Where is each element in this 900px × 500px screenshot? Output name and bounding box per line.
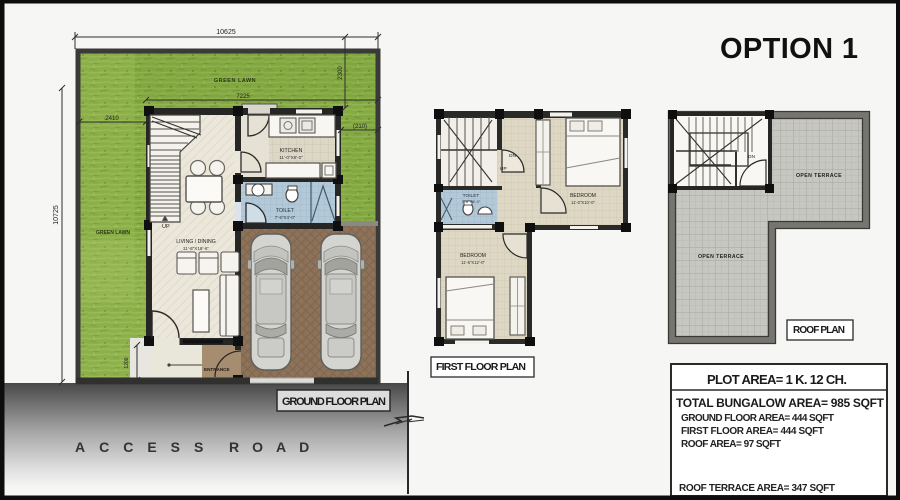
svg-text:BEDROOM: BEDROOM	[460, 253, 486, 259]
svg-text:TOILET: TOILET	[276, 208, 295, 214]
svg-text:7'-6"X4'-0": 7'-6"X4'-0"	[462, 199, 481, 204]
svg-text:OPTION 1: OPTION 1	[720, 33, 858, 65]
svg-text:DN: DN	[748, 154, 755, 160]
svg-text:ROOF TERRACE AREA= 347 SQFT: ROOF TERRACE AREA= 347 SQFT	[679, 483, 835, 494]
svg-text:ROOF PLAN: ROOF PLAN	[793, 325, 845, 336]
svg-text:GROUND FLOOR AREA= 444 SQFT: GROUND FLOOR AREA= 444 SQFT	[681, 413, 834, 424]
svg-text:2300: 2300	[338, 66, 344, 80]
svg-text:LIVING / DINING: LIVING / DINING	[176, 239, 216, 245]
svg-text:UP: UP	[500, 166, 507, 172]
svg-text:PLOT AREA= 1 K. 12 CH.: PLOT AREA= 1 K. 12 CH.	[707, 372, 847, 387]
svg-text:ACCESS: ACCESS	[75, 439, 217, 455]
svg-text:7225: 7225	[236, 94, 250, 100]
svg-text:UP: UP	[162, 224, 170, 230]
svg-text:11'-0"X10'-0": 11'-0"X10'-0"	[571, 200, 595, 205]
svg-text:1200: 1200	[124, 357, 130, 368]
svg-text:TOTAL BUNGALOW AREA= 985 SQFT: TOTAL BUNGALOW AREA= 985 SQFT	[676, 396, 885, 410]
svg-text:11'-6"X12'-0": 11'-6"X12'-0"	[461, 260, 485, 265]
svg-text:KITCHEN: KITCHEN	[280, 148, 303, 154]
svg-text:10725: 10725	[53, 205, 60, 225]
svg-text:FIRST FLOOR AREA= 444 SQFT: FIRST FLOOR AREA= 444 SQFT	[681, 426, 824, 437]
svg-text:7'-6"X4'-0": 7'-6"X4'-0"	[275, 215, 296, 220]
svg-text:DN: DN	[509, 153, 516, 159]
svg-text:OPEN TERRACE: OPEN TERRACE	[698, 254, 744, 260]
svg-text:FIRST FLOOR PLAN: FIRST FLOOR PLAN	[436, 361, 526, 373]
svg-text:ROAD: ROAD	[229, 439, 322, 455]
svg-text:GREEN LAWN: GREEN LAWN	[214, 78, 256, 84]
svg-text:2410: 2410	[105, 116, 119, 122]
svg-text:BEDROOM: BEDROOM	[570, 193, 596, 199]
svg-text:GROUND FLOOR PLAN: GROUND FLOOR PLAN	[282, 396, 386, 408]
svg-text:(210): (210)	[353, 124, 367, 130]
svg-text:10625: 10625	[216, 29, 236, 36]
svg-text:GREEN LAWN: GREEN LAWN	[96, 230, 130, 236]
svg-text:OPEN TERRACE: OPEN TERRACE	[796, 173, 842, 179]
svg-text:11'-0"X8'-0": 11'-0"X8'-0"	[279, 155, 303, 160]
svg-text:11'-6"X18'-6": 11'-6"X18'-6"	[183, 246, 209, 251]
svg-text:ROOF AREA= 97 SQFT: ROOF AREA= 97 SQFT	[681, 439, 781, 450]
